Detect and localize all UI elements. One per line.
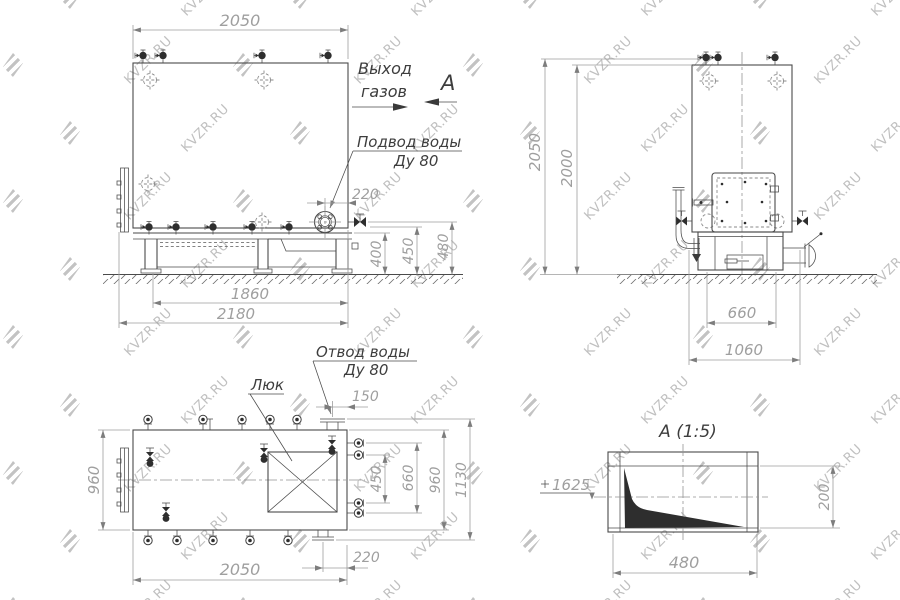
gas-outlet-text-1: Выход [358, 59, 412, 78]
boiler-technical-drawing: KVZR.RUKVZR.RUKVZR.RUKVZR.RUKVZR.RUKVZR.… [0, 0, 900, 600]
drain-arrowhead-icon [692, 254, 701, 262]
hatch-text: Люк [250, 376, 284, 394]
gas-outlet-label: Выход газов [352, 59, 412, 111]
dim-960-right: 960 [428, 467, 444, 494]
dim-150: 150 [352, 389, 379, 405]
dim-1860: 1860 [231, 285, 269, 303]
dim-480: 480 [436, 234, 452, 261]
front-top-valves [135, 50, 332, 63]
plan-interior-valves [146, 436, 336, 522]
level-mark-1625: 1625 [540, 476, 595, 500]
side-view: 2050 2000 660 1060 [526, 52, 877, 365]
dim-1625: 1625 [552, 476, 590, 494]
dim-220-front: 220 [352, 187, 379, 203]
water-inlet-label: Подвод воды Ду 80 [330, 133, 462, 208]
water-inlet-text-1: Подвод воды [357, 133, 461, 151]
water-outlet-stub [320, 419, 345, 430]
dim-660-side: 660 [728, 304, 757, 322]
furnace-door [693, 173, 779, 232]
view-a-arrowhead-icon [424, 98, 439, 105]
side-left-pipe [673, 188, 702, 263]
water-inlet-text-2: Ду 80 [393, 152, 438, 170]
dim-2050-top: 2050 [220, 11, 261, 30]
weld-profile-shape [624, 468, 744, 528]
dim-220-plan: 220 [353, 550, 380, 566]
dim-1060: 1060 [725, 341, 763, 359]
dim-450: 450 [401, 238, 417, 265]
detail-title: А (1:5) [658, 422, 717, 442]
front-right-valve [348, 214, 366, 227]
dim-480-detail: 480 [669, 553, 700, 572]
dim-2180: 2180 [217, 305, 255, 323]
plan-top-valves [144, 415, 301, 430]
front-base [133, 233, 358, 273]
side-base [698, 232, 783, 270]
water-outlet-text-1: Отвод воды [316, 343, 410, 361]
dim-660-plan: 660 [401, 465, 417, 492]
plan-right-nozzles [347, 439, 364, 517]
plan-view: Люк Отвод воды Ду 80 150 960 [85, 343, 475, 585]
front-body [117, 63, 348, 232]
door-handle [693, 199, 714, 207]
dim-2050-plan: 2050 [220, 560, 261, 579]
side-right-pipe [783, 211, 823, 268]
front-centre-marks [139, 71, 274, 232]
dim-200: 200 [817, 484, 833, 511]
ash-door [727, 255, 763, 269]
view-a-marker: А [424, 71, 457, 106]
dim-400: 400 [369, 241, 385, 268]
water-outlet-text-2: Ду 80 [343, 361, 388, 379]
side-top-valves [698, 52, 779, 65]
side-dimensions: 2050 2000 660 1060 [526, 59, 800, 365]
view-a-letter: А [439, 71, 455, 95]
drawing-svg: Выход газов А Подвод воды Ду 80 [0, 0, 900, 600]
front-ground [103, 275, 463, 285]
gas-flow-arrowhead-icon [393, 103, 408, 111]
dim-450-plan: 450 [369, 466, 385, 493]
dim-2000: 2000 [558, 149, 576, 187]
front-view: Выход газов А Подвод воды Ду 80 [103, 11, 463, 328]
dim-960-left: 960 [85, 466, 103, 495]
plan-bottom-valves [144, 530, 292, 545]
detail-a-view: А (1:5) 1625 200 [540, 422, 840, 578]
dim-2050-side: 2050 [526, 133, 544, 171]
bottom-outlet-stub [312, 530, 334, 540]
dim-1130: 1130 [454, 462, 470, 498]
gas-outlet-text-2: газов [361, 82, 407, 101]
hatch-opening [268, 452, 337, 512]
